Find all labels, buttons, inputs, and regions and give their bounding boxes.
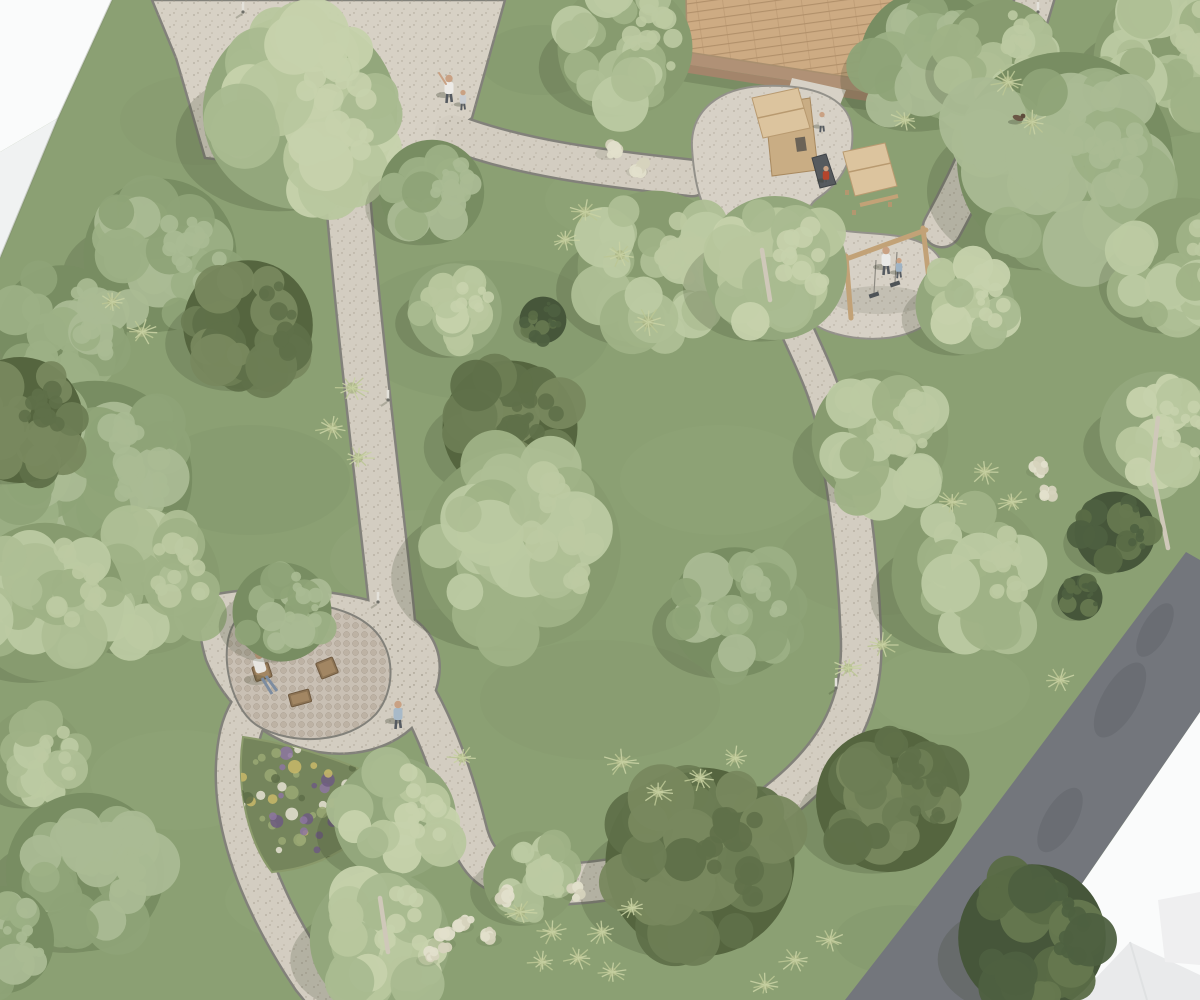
park-aerial-render: [0, 0, 1200, 1000]
park-render-canvas: [0, 0, 1200, 1000]
